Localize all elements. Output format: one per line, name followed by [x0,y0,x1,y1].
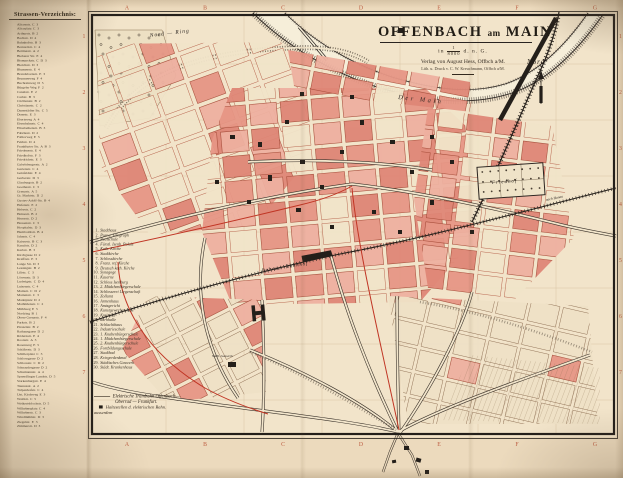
street-index-list: Alicenstr.C 3AliceplatzC 3Arthurstr.B 2B… [17,22,99,428]
svg-text:1: 1 [619,34,622,40]
title-rule [380,42,532,43]
svg-text:D: D [359,6,363,12]
svg-text:A: A [125,6,130,12]
svg-text:3: 3 [619,146,622,152]
svg-text:B: B [203,6,207,12]
tram-stop-icon [99,405,103,408]
svg-text:F: F [515,442,519,448]
svg-text:4: 4 [619,202,622,208]
tram-note: Elektrische Trambahn Offenbach — Oberrad… [94,393,394,429]
printer-line: Lith. u. Druck v. C. W. Kreuchmann, Offb… [378,66,548,71]
svg-text:G: G [593,442,597,448]
svg-text:E: E [437,442,441,448]
title-flourish [452,74,474,75]
legend-item: 30.Städt. Krankenhaus [92,365,219,370]
street-index-item: Zimmerstr.D 3 [17,424,99,429]
svg-text:5: 5 [619,258,622,264]
map-title: OFFENBACH am MAIN [378,24,548,41]
svg-text:E: E [437,6,441,12]
street-index-title: Strassen-Verzeichnis: [9,11,81,20]
street-index: Strassen-Verzeichnis: Alicenstr.C 3Alice… [3,11,89,471]
legend-list: 1.Stadthaus2.Post u. Telegraph3.Realschu… [92,228,219,370]
south-roads [383,433,420,476]
svg-text:6: 6 [619,314,622,320]
publisher-line: Verlag von August Hess, Offbch a/M. [378,59,548,65]
svg-text:D: D [359,442,363,448]
junction-buildings [392,446,429,474]
svg-text:F: F [515,6,519,12]
title-block: OFFENBACH am MAIN in18000d. n. G. Verlag… [378,24,548,75]
map-scan-page: AABBCCDDEEFFGG11223344556677 Nord — Ring… [0,0,623,478]
svg-text:2: 2 [619,90,622,96]
svg-text:7: 7 [619,370,622,376]
svg-text:C: C [281,6,285,12]
north-label: Nord [527,58,545,66]
map-legend: 1.Stadthaus2.Post u. Telegraph3.Realschu… [92,228,322,478]
map-scale: in18000d. n. G. [378,46,548,56]
tram-line-symbol [94,396,110,397]
tram-note-line4: ausserdem [94,410,280,415]
svg-text:G: G [593,6,597,12]
